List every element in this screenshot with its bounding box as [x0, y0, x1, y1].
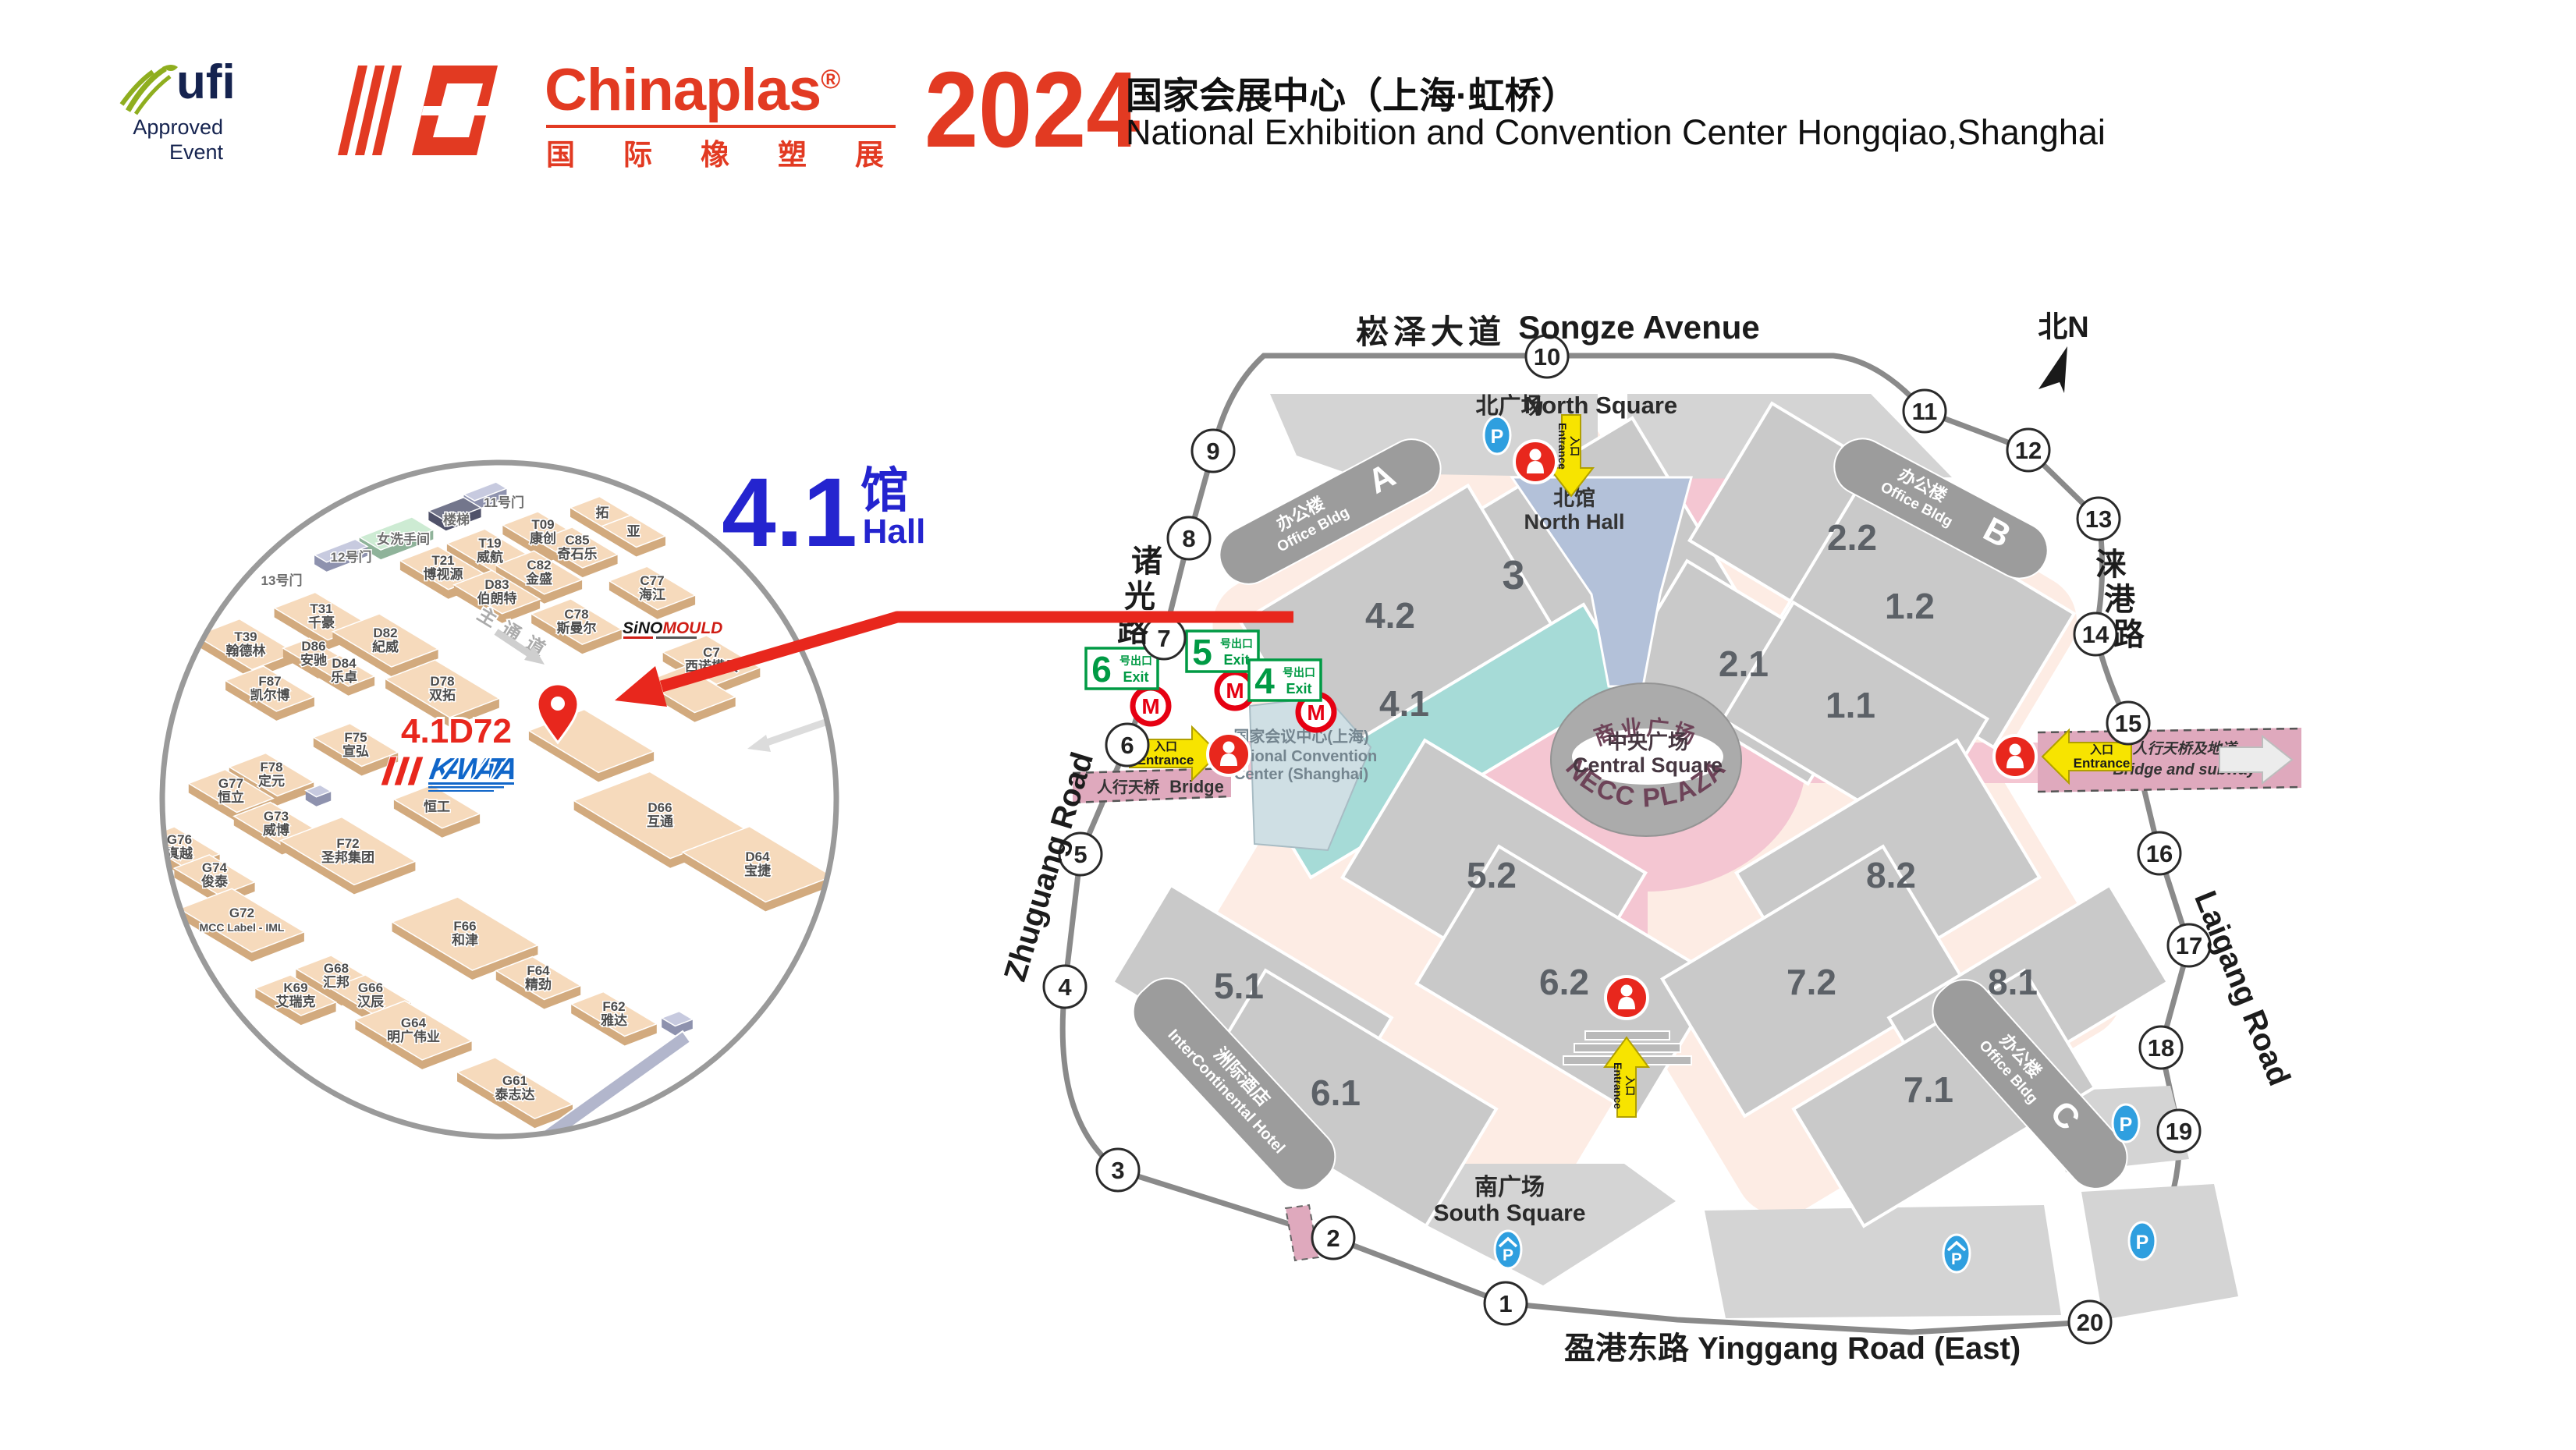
songze-avenue-cn: 崧泽大道 [1356, 314, 1506, 350]
entrance-person-icon [1606, 977, 1648, 1019]
svg-text:G68: G68 [324, 961, 349, 976]
svg-text:1: 1 [1499, 1290, 1512, 1317]
svg-text:凯尔博: 凯尔博 [250, 687, 290, 703]
metro-exit-5: 5号出口Exit [1187, 631, 1258, 672]
hall-label-1.1: 1.1 [1826, 685, 1875, 725]
hall-label-1.2: 1.2 [1885, 586, 1935, 626]
svg-text:3: 3 [1111, 1157, 1124, 1184]
svg-text:F66: F66 [453, 919, 476, 934]
road-marker-14: 14 [2074, 613, 2117, 655]
svg-text:M: M [1307, 700, 1325, 725]
svg-text:汉辰: 汉辰 [357, 994, 385, 1009]
svg-text:D64: D64 [745, 849, 770, 864]
svg-text:7: 7 [1157, 625, 1170, 652]
hall-label-5.1: 5.1 [1214, 966, 1264, 1006]
laigang-road-cn: 港 [2104, 583, 2136, 617]
svg-text:F64: F64 [527, 963, 550, 978]
svg-text:互通: 互通 [647, 814, 673, 829]
svg-text:博视源: 博视源 [424, 566, 463, 582]
svg-text:入口: 入口 [1569, 436, 1581, 456]
svg-text:M: M [1141, 694, 1159, 718]
svg-text:G73: G73 [264, 809, 289, 824]
parking-icon: P [2113, 1104, 2139, 1142]
svg-text:D84: D84 [332, 656, 357, 671]
svg-text:定元: 定元 [258, 773, 285, 789]
metro-exit-4: 4号出口Exit [1249, 660, 1321, 701]
svg-text:G77: G77 [218, 776, 243, 791]
road-marker-16: 16 [2138, 832, 2180, 874]
svg-text:T39: T39 [234, 629, 257, 644]
svg-text:4: 4 [1254, 661, 1275, 701]
svg-text:翰德林: 翰德林 [226, 643, 266, 658]
laigang-road-cn: 涞 [2095, 548, 2127, 582]
svg-text:12: 12 [2015, 437, 2042, 464]
road-marker-8: 8 [1168, 517, 1210, 559]
svg-text:KAWATA: KAWATA [427, 752, 520, 786]
hall-label-4.1: 4.1 [1379, 683, 1429, 724]
svg-text:入口: 入口 [1154, 740, 1177, 753]
south-square-en: South Square [1433, 1200, 1585, 1226]
entrance-person-icon [1514, 441, 1556, 483]
svg-text:汇邦: 汇邦 [323, 974, 349, 990]
svg-text:号出口: 号出口 [1220, 637, 1253, 650]
gate-label: 12号门 [331, 549, 372, 565]
page: ufi Approved Event Chinaplas® 国际橡塑展 2024… [0, 0, 2576, 1450]
svg-text:F72: F72 [336, 836, 359, 851]
svg-text:16: 16 [2146, 840, 2173, 867]
hall-label-7.2: 7.2 [1787, 962, 1836, 1002]
svg-text:Entrance: Entrance [2074, 756, 2131, 771]
compass-needle [2038, 346, 2067, 393]
svg-text:Center (Shanghai): Center (Shanghai) [1234, 766, 1368, 783]
svg-text:宝捷: 宝捷 [744, 863, 772, 878]
svg-text:P: P [1491, 426, 1504, 448]
road-marker-4: 4 [1044, 966, 1086, 1008]
road-marker-19: 19 [2158, 1110, 2200, 1152]
svg-text:MCC Label - IML: MCC Label - IML [200, 921, 285, 934]
svg-text:2: 2 [1326, 1225, 1339, 1252]
svg-text:千豪: 千豪 [308, 615, 335, 630]
svg-text:17: 17 [2176, 932, 2202, 959]
svg-text:F87: F87 [258, 674, 281, 689]
metro-icon: M [1217, 672, 1253, 708]
svg-text:拓: 拓 [596, 505, 609, 520]
svg-text:4: 4 [1058, 973, 1072, 1001]
svg-text:D66: D66 [648, 800, 672, 815]
entrance-person-icon [1208, 733, 1250, 775]
parking-icon: P [2129, 1222, 2156, 1260]
svg-text:D78: D78 [430, 674, 454, 689]
svg-text:T21: T21 [431, 553, 454, 568]
svg-text:C82: C82 [527, 558, 551, 573]
svg-text:紀威: 紀威 [372, 639, 399, 654]
svg-text:F62: F62 [602, 999, 625, 1014]
svg-text:K69: K69 [283, 980, 307, 995]
svg-text:号出口: 号出口 [1119, 654, 1152, 667]
hall-callout-cn: 馆 [860, 464, 909, 518]
svg-text:圣邦集团: 圣邦集团 [321, 849, 374, 865]
road-marker-18: 18 [2140, 1026, 2182, 1069]
svg-text:宣弘: 宣弘 [342, 743, 369, 759]
zhuguang-road-cn: 光 [1124, 580, 1155, 614]
svg-text:恒立: 恒立 [218, 789, 244, 805]
block [163, 585, 208, 606]
hall-label-6.2: 6.2 [1539, 962, 1589, 1002]
svg-text:P: P [1951, 1250, 1962, 1268]
svg-text:G74: G74 [202, 860, 228, 875]
hall-callout-number: 4.1 [722, 459, 857, 567]
svg-text:斯曼尔: 斯曼尔 [557, 620, 597, 636]
road-marker-1: 1 [1485, 1282, 1527, 1324]
svg-text:号出口: 号出口 [1283, 666, 1315, 679]
svg-text:金盛: 金盛 [525, 571, 552, 587]
west-bridge-cn: 人行天桥 [1097, 778, 1160, 796]
road-marker-7: 7 [1143, 617, 1185, 659]
metro-icon: M [1133, 688, 1169, 724]
parking-icon: P [1484, 417, 1510, 454]
svg-text:14: 14 [2082, 621, 2109, 648]
svg-text:G66: G66 [358, 980, 383, 995]
svg-text:D82: D82 [373, 626, 397, 640]
central-square-en: Central Square [1573, 753, 1723, 777]
svg-text:入口: 入口 [2090, 743, 2113, 757]
svg-text:F78: F78 [260, 760, 282, 775]
road-marker-15: 15 [2107, 702, 2149, 744]
svg-text:9: 9 [1206, 438, 1219, 465]
svg-text:F75: F75 [344, 730, 367, 745]
svg-text:5: 5 [1073, 841, 1087, 868]
svg-text:艾瑞克: 艾瑞克 [276, 994, 316, 1009]
hall-label-5.2: 5.2 [1467, 855, 1517, 895]
svg-text:P: P [1503, 1246, 1513, 1264]
svg-text:P: P [2120, 1114, 2133, 1136]
svg-text:G64: G64 [401, 1016, 427, 1030]
gate-label: 11号门 [484, 495, 524, 510]
svg-text:T09: T09 [531, 517, 554, 532]
svg-text:亚: 亚 [627, 524, 640, 539]
svg-text:恒工: 恒工 [424, 799, 450, 814]
zhuguang-road-cn: 诸 [1131, 544, 1162, 579]
road-marker-3: 3 [1097, 1149, 1139, 1191]
road-marker-11: 11 [1904, 390, 1946, 432]
svg-text:双拓: 双拓 [429, 688, 456, 703]
hall-callout-en: Hall [863, 512, 926, 551]
svg-text:明广伟业: 明广伟业 [387, 1029, 440, 1044]
gate-label: 13号门 [261, 573, 303, 588]
facility-label: 女洗手间 [377, 531, 430, 547]
svg-text:乐卓: 乐卓 [331, 669, 357, 685]
svg-text:泰志达: 泰志达 [495, 1087, 535, 1102]
svg-text:国家会议中心(上海): 国家会议中心(上海) [1233, 727, 1368, 746]
svg-text:雅达: 雅达 [600, 1012, 627, 1028]
svg-text:T19: T19 [478, 536, 501, 551]
south-square-cn: 南广场 [1474, 1175, 1545, 1200]
svg-text:间: 间 [179, 594, 192, 610]
entrance-person-icon [1994, 736, 2036, 778]
road-marker-6: 6 [1106, 724, 1148, 766]
svg-text:精劲: 精劲 [525, 977, 552, 992]
svg-text:G72: G72 [229, 906, 254, 920]
facility-label: 楼梯 [443, 512, 470, 527]
svg-text:15: 15 [2115, 710, 2141, 737]
svg-text:Exit: Exit [1223, 652, 1249, 668]
main-map: 办公楼Office BldgA办公楼Office BldgB办公楼Office … [998, 309, 2301, 1366]
covered-parking-icon: P [1943, 1235, 1970, 1272]
hall-label-8.2: 8.2 [1866, 855, 1916, 895]
svg-text:康创: 康创 [530, 530, 556, 546]
svg-text:5: 5 [1192, 632, 1212, 672]
svg-text:和津: 和津 [452, 932, 478, 948]
songze-avenue-en: Songze Avenue [1518, 309, 1760, 346]
hall-label-6.1: 6.1 [1311, 1072, 1361, 1113]
svg-text:D86: D86 [301, 639, 325, 654]
svg-text:19: 19 [2166, 1118, 2192, 1145]
hall-label-7.1: 7.1 [1904, 1069, 1953, 1110]
venue-map: 办公楼Office BldgA办公楼Office BldgB办公楼Office … [0, 0, 2576, 1450]
road-marker-13: 13 [2077, 498, 2120, 540]
sinomould-logo: SiNOMOULD [623, 619, 722, 637]
svg-text:P: P [2136, 1232, 2149, 1253]
svg-text:Entrance: Entrance [1612, 1062, 1624, 1109]
hall-label-2.1: 2.1 [1719, 643, 1769, 684]
svg-text:Exit: Exit [1286, 681, 1311, 697]
svg-text:Entrance: Entrance [1556, 423, 1569, 470]
hall-label-4.2: 4.2 [1365, 595, 1415, 636]
svg-text:海江: 海江 [639, 587, 665, 602]
booth-number: 4.1D72 [401, 712, 512, 750]
laigang-road-en: Laigang Road [2187, 886, 2297, 1090]
svg-text:C85: C85 [565, 533, 589, 548]
svg-text:18: 18 [2148, 1034, 2174, 1062]
central-square-cn: 中央广场 [1607, 730, 1688, 753]
north-square-en: North Square [1524, 392, 1677, 419]
svg-text:M: M [1226, 679, 1244, 703]
svg-text:安驰: 安驰 [300, 652, 327, 668]
svg-text:D83: D83 [484, 577, 509, 592]
west-bridge-en: Bridge [1169, 777, 1224, 796]
svg-text:入口: 入口 [1624, 1076, 1636, 1096]
road-marker-2: 2 [1312, 1217, 1354, 1259]
svg-text:C77: C77 [640, 573, 664, 588]
covered-parking-icon: P [1495, 1231, 1521, 1268]
hall-label-2.2: 2.2 [1827, 517, 1877, 558]
svg-text:T31: T31 [310, 601, 332, 616]
svg-text:6: 6 [1120, 732, 1134, 759]
svg-text:俊泰: 俊泰 [201, 874, 229, 889]
north-hall-en: North Hall [1524, 510, 1624, 534]
svg-text:11: 11 [1912, 398, 1938, 425]
svg-text:Exit: Exit [1123, 669, 1148, 685]
svg-text:伯朗特: 伯朗特 [477, 590, 517, 606]
svg-text:Laigang Road: Laigang Road [2187, 886, 2297, 1090]
svg-text:13: 13 [2085, 505, 2112, 533]
svg-text:威博: 威博 [263, 822, 289, 838]
hall-label-3: 3 [1503, 553, 1525, 598]
svg-text:8: 8 [1182, 525, 1195, 552]
yinggang-road: 盈港东路 Yinggang Road (East) [1564, 1331, 2021, 1366]
kawata-logo: KAWATA [427, 752, 520, 786]
svg-text:C78: C78 [564, 607, 588, 622]
svg-text:奇石乐: 奇石乐 [558, 546, 598, 562]
svg-text:威航: 威航 [477, 549, 503, 565]
compass-label: 北N [2038, 311, 2088, 344]
road-marker-12: 12 [2007, 429, 2049, 471]
road-marker-9: 9 [1192, 430, 1234, 472]
svg-text:6: 6 [1091, 649, 1112, 690]
hall-label-8.1: 8.1 [1988, 962, 2038, 1002]
svg-text:10: 10 [1534, 343, 1560, 370]
svg-text:20: 20 [2077, 1309, 2103, 1336]
svg-text:C7: C7 [703, 645, 720, 660]
svg-text:G61: G61 [502, 1073, 527, 1088]
road-marker-20: 20 [2069, 1301, 2111, 1343]
svg-text:G76: G76 [167, 832, 192, 847]
laigang-road-cn: 路 [2113, 618, 2145, 652]
metro-exit-6: 6号出口Exit [1086, 648, 1158, 690]
